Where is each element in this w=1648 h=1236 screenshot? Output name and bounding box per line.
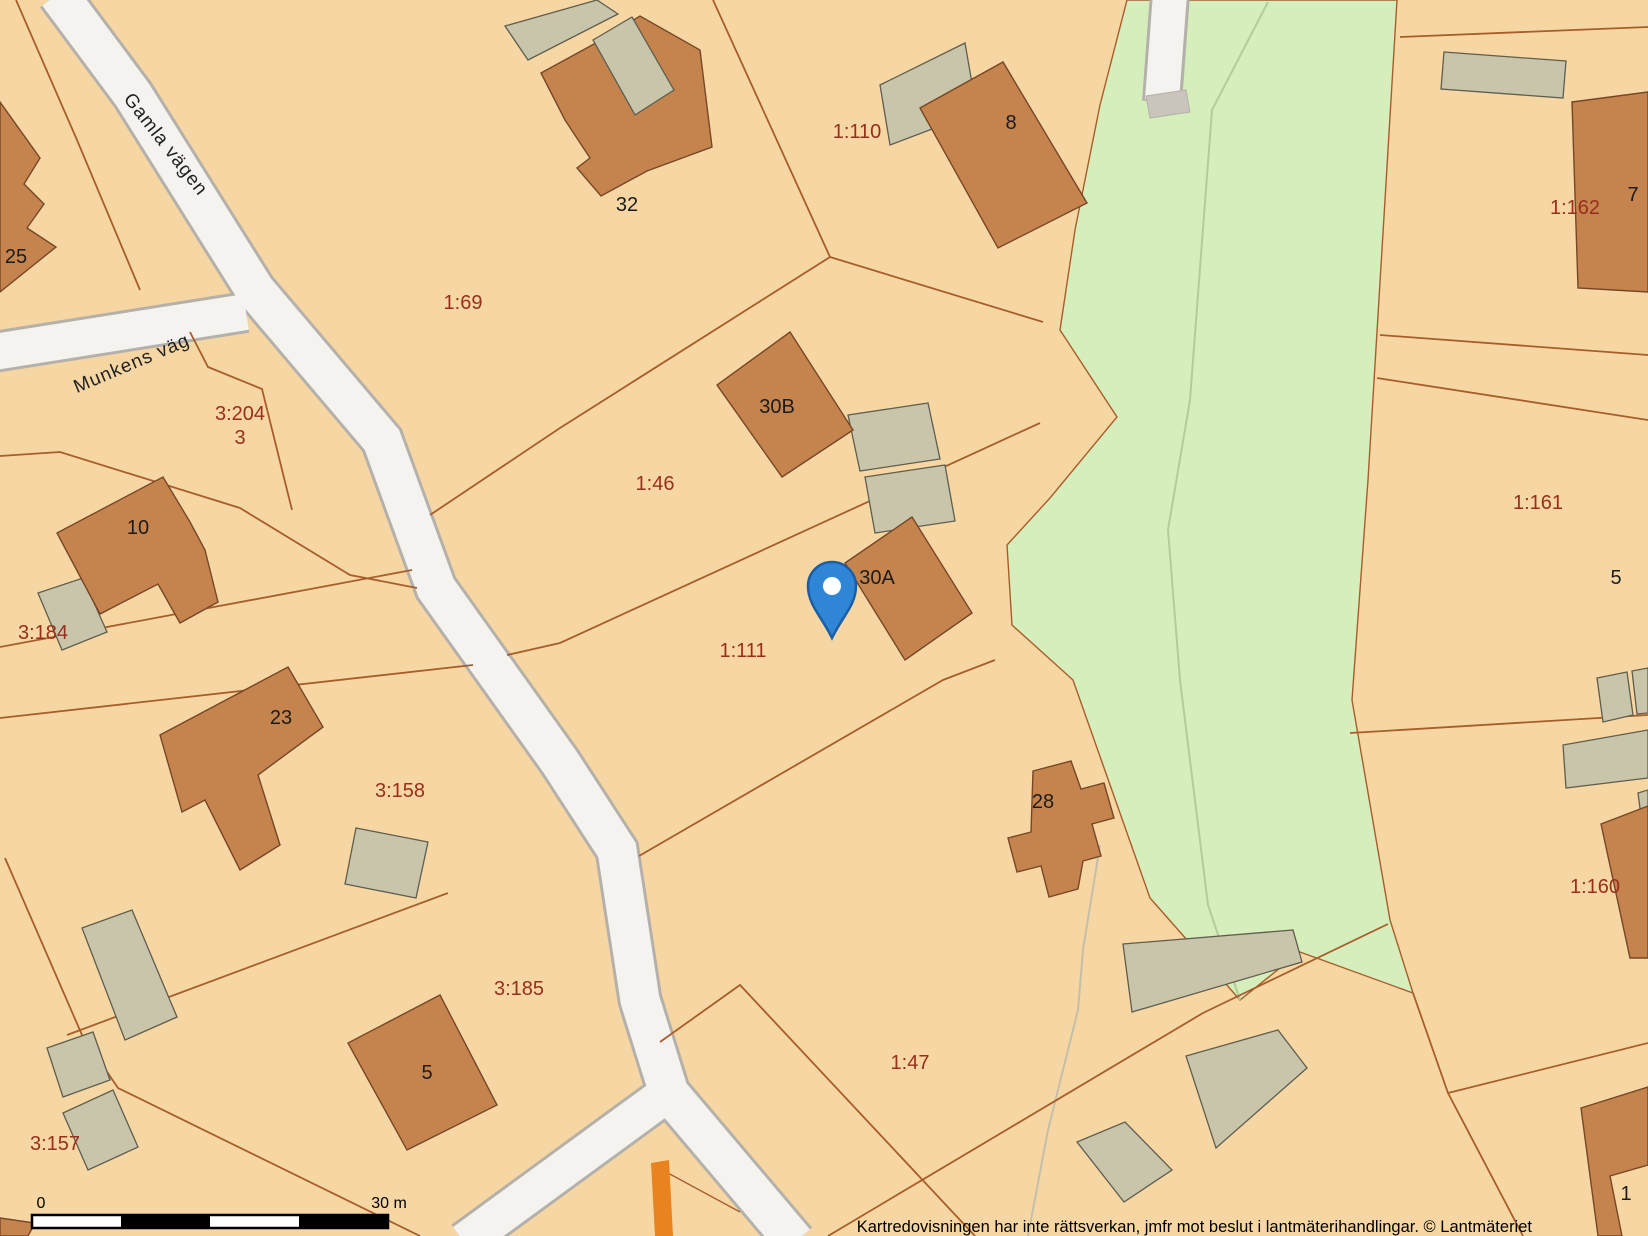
map-canvas[interactable]: Gamla vägenMunkens väg 1:693:20431:1101:… [0, 0, 1648, 1236]
parcel-id-label: 3:184 [18, 622, 68, 644]
parcel-id-label: 1:111 [719, 640, 766, 662]
parcel-id-label: 1:69 [444, 292, 483, 314]
parcel-id-label: 3:185 [494, 978, 544, 1000]
parcel-id-label: 1:161 [1513, 492, 1563, 514]
scale-start-label: 0 [37, 1195, 46, 1212]
house-number-label: 30B [759, 396, 795, 418]
house-number-label: 5 [1610, 567, 1621, 589]
shed [848, 403, 940, 471]
parcel-id-label: 3:158 [375, 780, 425, 802]
parcel-id-label: 1:47 [891, 1052, 930, 1074]
house-number-label: 1 [1620, 1183, 1631, 1205]
map-disclaimer: Kartredovisningen har inte rättsverkan, … [857, 1218, 1533, 1236]
house-number-label: 7 [1627, 184, 1638, 206]
parcel-id-label: 3:204 [215, 403, 265, 425]
house-number-label: 32 [616, 194, 638, 216]
parcel-id-label: 1:110 [833, 121, 882, 143]
parcel-id-label: 3 [234, 427, 245, 449]
parcel-id-label: 1:160 [1570, 876, 1620, 898]
shed [1597, 672, 1633, 722]
house-number-label: 5 [421, 1062, 432, 1084]
parcel-id-label: 1:162 [1550, 197, 1600, 219]
house-number-label: 25 [5, 246, 27, 268]
map-root: Gamla vägenMunkens väg 1:693:20431:1101:… [0, 0, 1648, 1236]
scale-end-label: 30 m [371, 1195, 407, 1212]
house-number-label: 28 [1032, 791, 1054, 813]
parcel-id-label: 1:46 [636, 473, 675, 495]
house-number-label: 10 [127, 517, 149, 539]
house-number-label: 8 [1005, 112, 1016, 134]
house-number-label: 30A [859, 567, 895, 589]
parcel-id-label: 3:157 [30, 1133, 80, 1155]
house-number-label: 23 [270, 707, 292, 729]
